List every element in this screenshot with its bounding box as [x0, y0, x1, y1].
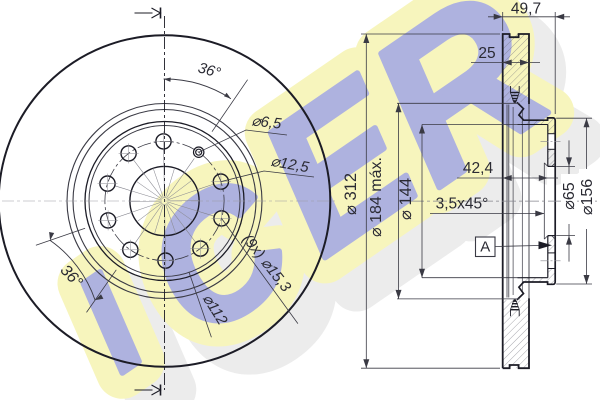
svg-text:49,7: 49,7	[511, 1, 541, 18]
svg-text:⌀156: ⌀156	[579, 179, 596, 215]
svg-text:A: A	[480, 239, 490, 256]
svg-text:3,5x45°: 3,5x45°	[436, 196, 489, 213]
svg-text:⌀ 184 máx.: ⌀ 184 máx.	[368, 157, 385, 237]
svg-text:⌀ 144: ⌀ 144	[397, 178, 415, 220]
svg-text:42,4: 42,4	[463, 160, 494, 177]
svg-text:⌀65: ⌀65	[561, 182, 578, 210]
svg-text:⌀6,5: ⌀6,5	[251, 113, 283, 133]
svg-text:25: 25	[478, 45, 495, 62]
svg-text:⌀ 312: ⌀ 312	[342, 173, 360, 215]
